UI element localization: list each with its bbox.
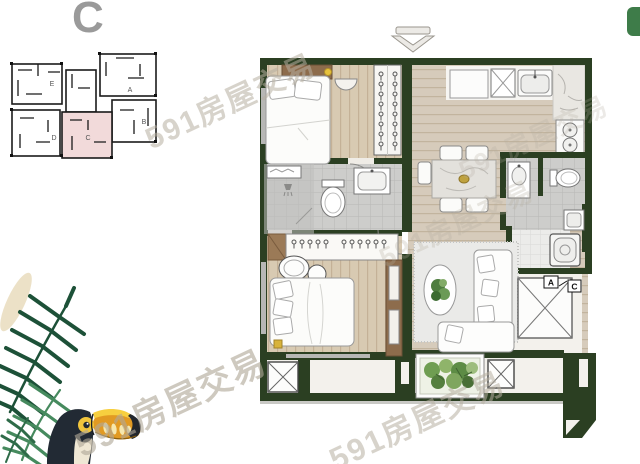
- tan-leaf-icon: [0, 269, 38, 335]
- key-plan-label-a: A: [128, 87, 133, 94]
- sink-icon: [354, 168, 390, 194]
- dining-chair: [418, 162, 431, 184]
- north-arrow-icon: [392, 27, 434, 52]
- ac-unit-icon: [488, 360, 514, 388]
- bed-2: [266, 76, 330, 164]
- entry-label-a: A: [548, 278, 554, 288]
- key-plan-label-c: C: [85, 135, 90, 142]
- entry: A C: [518, 276, 581, 338]
- key-plan: E A B D C: [8, 50, 160, 170]
- key-plan-unit-d: [12, 110, 60, 156]
- washing-machine-icon: [550, 234, 580, 266]
- unit-floor-plan: A C: [250, 24, 600, 444]
- kitchen-cabinet: [450, 70, 488, 98]
- dining-chair: [466, 198, 488, 212]
- toucan-eye: [83, 422, 89, 428]
- toilet-icon: [321, 180, 345, 217]
- wardrobe: [374, 65, 401, 155]
- fridge-icon: [491, 69, 515, 97]
- kitchen-sink: [518, 70, 552, 96]
- dining-chair: [440, 146, 462, 160]
- key-plan-label-e: E: [50, 81, 55, 88]
- key-plan-label-b: B: [142, 119, 147, 126]
- marble-counter: [553, 65, 585, 120]
- living-room: [414, 242, 518, 352]
- ac-unit-icon: [268, 362, 298, 392]
- vanity-sink: [508, 162, 530, 198]
- key-plan-core: [66, 70, 96, 112]
- toucan-illustration: [47, 409, 141, 464]
- floor-plan-page: C E A B D C: [0, 0, 640, 464]
- building-edge: [563, 353, 596, 438]
- wall-shadow: [260, 401, 565, 404]
- dining-table: [432, 160, 496, 198]
- dining-chair: [466, 146, 488, 160]
- dining-chair: [440, 198, 462, 212]
- stove-icon: [556, 120, 584, 154]
- toilet-icon: [550, 169, 580, 187]
- shelf: [267, 166, 301, 178]
- lamp-icon: [325, 69, 332, 76]
- entry-label-c: C: [571, 282, 577, 292]
- key-plan-label-d: D: [51, 135, 56, 142]
- bed-1: [270, 278, 354, 346]
- coffee-table: [424, 265, 456, 315]
- tropical-decoration: [0, 262, 165, 464]
- laundry-sink: [564, 210, 584, 230]
- closet: [268, 234, 398, 260]
- unit-title: C: [72, 0, 105, 42]
- tv-cabinet: [386, 260, 402, 356]
- bedside-marker: [274, 340, 282, 348]
- planter-box: [416, 354, 484, 398]
- green-corner-chip: [627, 7, 640, 36]
